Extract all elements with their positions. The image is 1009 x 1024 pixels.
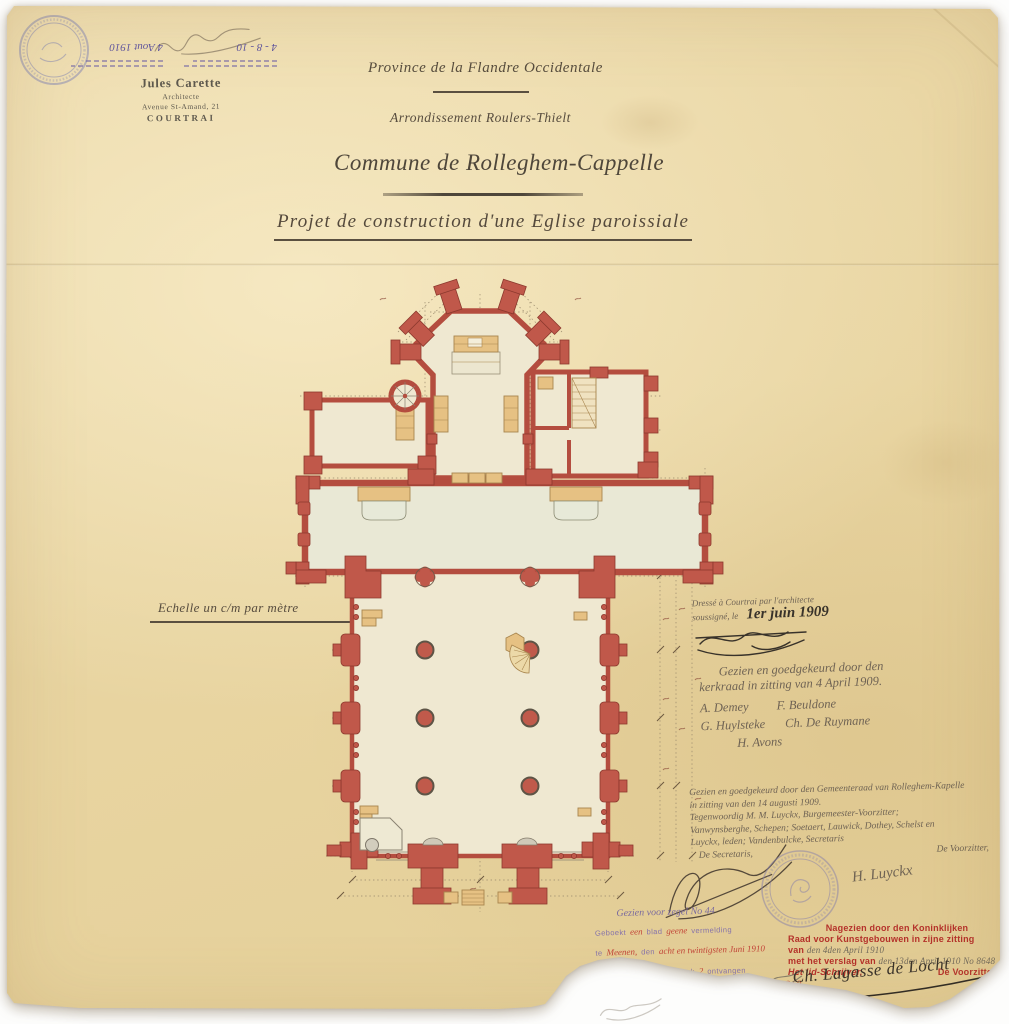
- kerkraad-signature: A. Demey: [700, 700, 749, 716]
- stamp-word: deel boek: [596, 968, 632, 978]
- handwritten-word: acht en twintigsten Juni 1910: [659, 943, 765, 956]
- handwritten-word: geene: [666, 925, 687, 936]
- commission-line2: Raad voor Kunstgebouwen in zijne zitting: [788, 934, 1006, 945]
- underline: [274, 239, 692, 241]
- signature-architect: [694, 620, 812, 660]
- scanned-drawing-canvas: 4 - 8 - 10 4 Aout 1910 Jules Carette Arc…: [0, 0, 1009, 1024]
- baptistery: [360, 818, 402, 852]
- communion-bench: [452, 473, 502, 483]
- stamp-word: blad: [646, 926, 662, 935]
- lion-figure: [791, 880, 811, 902]
- baptismal-font: [366, 839, 379, 852]
- stamp-word: Geboekt: [595, 927, 626, 937]
- architect-address: Avenue St-Amand, 21: [95, 101, 267, 112]
- fold-crease: [0, 263, 1009, 266]
- paper-sheet-wrap: 4 - 8 - 10 4 Aout 1910 Jules Carette Arc…: [0, 0, 1009, 1024]
- heading-commune: Commune de Rolleghem-Cappelle: [334, 150, 664, 176]
- receipt-line5: twee frank zestig centiemen voor zegelre…: [596, 978, 801, 993]
- receipt-line3: te Meenen, den acht en twintigsten Juni …: [595, 937, 800, 960]
- kerkraad-signature: G. Huylsteke: [700, 717, 765, 733]
- receipt-line2: Geboekt een blad geene vermelding: [595, 917, 800, 940]
- handwritten-word: 2: [699, 965, 704, 975]
- side-altar-left: [358, 487, 410, 520]
- total-amount: 4.90: [780, 1007, 802, 1019]
- high-altar: [452, 336, 500, 374]
- underline: [433, 91, 529, 93]
- architect-stamp: Jules Carette Architecte Avenue St-Amand…: [95, 75, 267, 123]
- handwritten-text: twee frank zestig centiemen voor zegelre…: [596, 980, 744, 994]
- entrance-steps: [462, 890, 484, 905]
- kerkraad-signature: F. Beuldone: [776, 696, 836, 712]
- amount: 2.30: [786, 991, 802, 1001]
- heading-province: Province de la Flandre Occidentale: [368, 60, 603, 77]
- registry-stamp-block: 4 Aout 1910: [63, 28, 163, 70]
- kerkraad-note: Gezien en goedgekeurd door den kerkraad …: [699, 659, 887, 753]
- inverted-registry-stamps: 4 - 8 - 10 4 Aout 1910: [52, 28, 277, 70]
- side-altar-right: [550, 487, 602, 520]
- kerkraad-signature: H. Avons: [737, 734, 782, 750]
- signature-chairman: H. Luyckx: [851, 862, 913, 886]
- handwritten-date: den 4den April 1910: [807, 945, 884, 955]
- handwritten-date: 4 - 8 - 10: [237, 42, 277, 54]
- handwritten-word: Meenen,: [606, 947, 637, 958]
- handwritten-word: 9a: [636, 967, 645, 977]
- underline: [383, 193, 583, 196]
- corner-crease: [880, 0, 1009, 122]
- paper-sheet: 4 - 8 - 10 4 Aout 1910 Jules Carette Arc…: [0, 0, 1009, 1024]
- nave: [352, 572, 608, 856]
- stamp-word: te: [595, 949, 602, 958]
- floor-plan: [290, 280, 720, 920]
- paper-stain: [600, 95, 700, 150]
- heading-project-title: Projet de construction d'une Eglise paro…: [277, 211, 689, 233]
- kerkraad-signature: Ch. De Ruymane: [785, 713, 870, 730]
- chairman-title: De Voorzitter,: [936, 842, 989, 856]
- architect-name: Jules Carette: [95, 75, 267, 92]
- scale-note: Echelle un c/m par mètre: [158, 600, 299, 616]
- commission-line1: Nagezien door den Koninklijken: [788, 923, 1006, 934]
- stamp-word: den: [641, 947, 655, 956]
- handwritten-word: 94: [669, 966, 678, 976]
- stamp-text-line: [193, 60, 277, 63]
- stamp-text-line: [85, 60, 163, 63]
- paper-stain: [880, 420, 1009, 505]
- architect-city: COURTRAI: [95, 112, 267, 124]
- architect-title: Architecte: [95, 91, 267, 102]
- stamp-text-line: [71, 65, 163, 68]
- stamp-word: vak: [682, 967, 695, 976]
- stamp-word: vermelding: [691, 925, 732, 935]
- registry-stamp-block: 4 - 8 - 10: [177, 28, 277, 70]
- heading-arrondissement: Arrondissement Roulers-Thielt: [390, 110, 571, 126]
- stamp-text-line: [181, 65, 277, 68]
- handwritten-word: een: [630, 926, 643, 936]
- stamp-word: blad: [649, 967, 665, 976]
- handwritten-date: 4 Aout 1910: [109, 42, 163, 54]
- spiral-staircase: [391, 382, 419, 410]
- stamp-label: van: [788, 945, 804, 955]
